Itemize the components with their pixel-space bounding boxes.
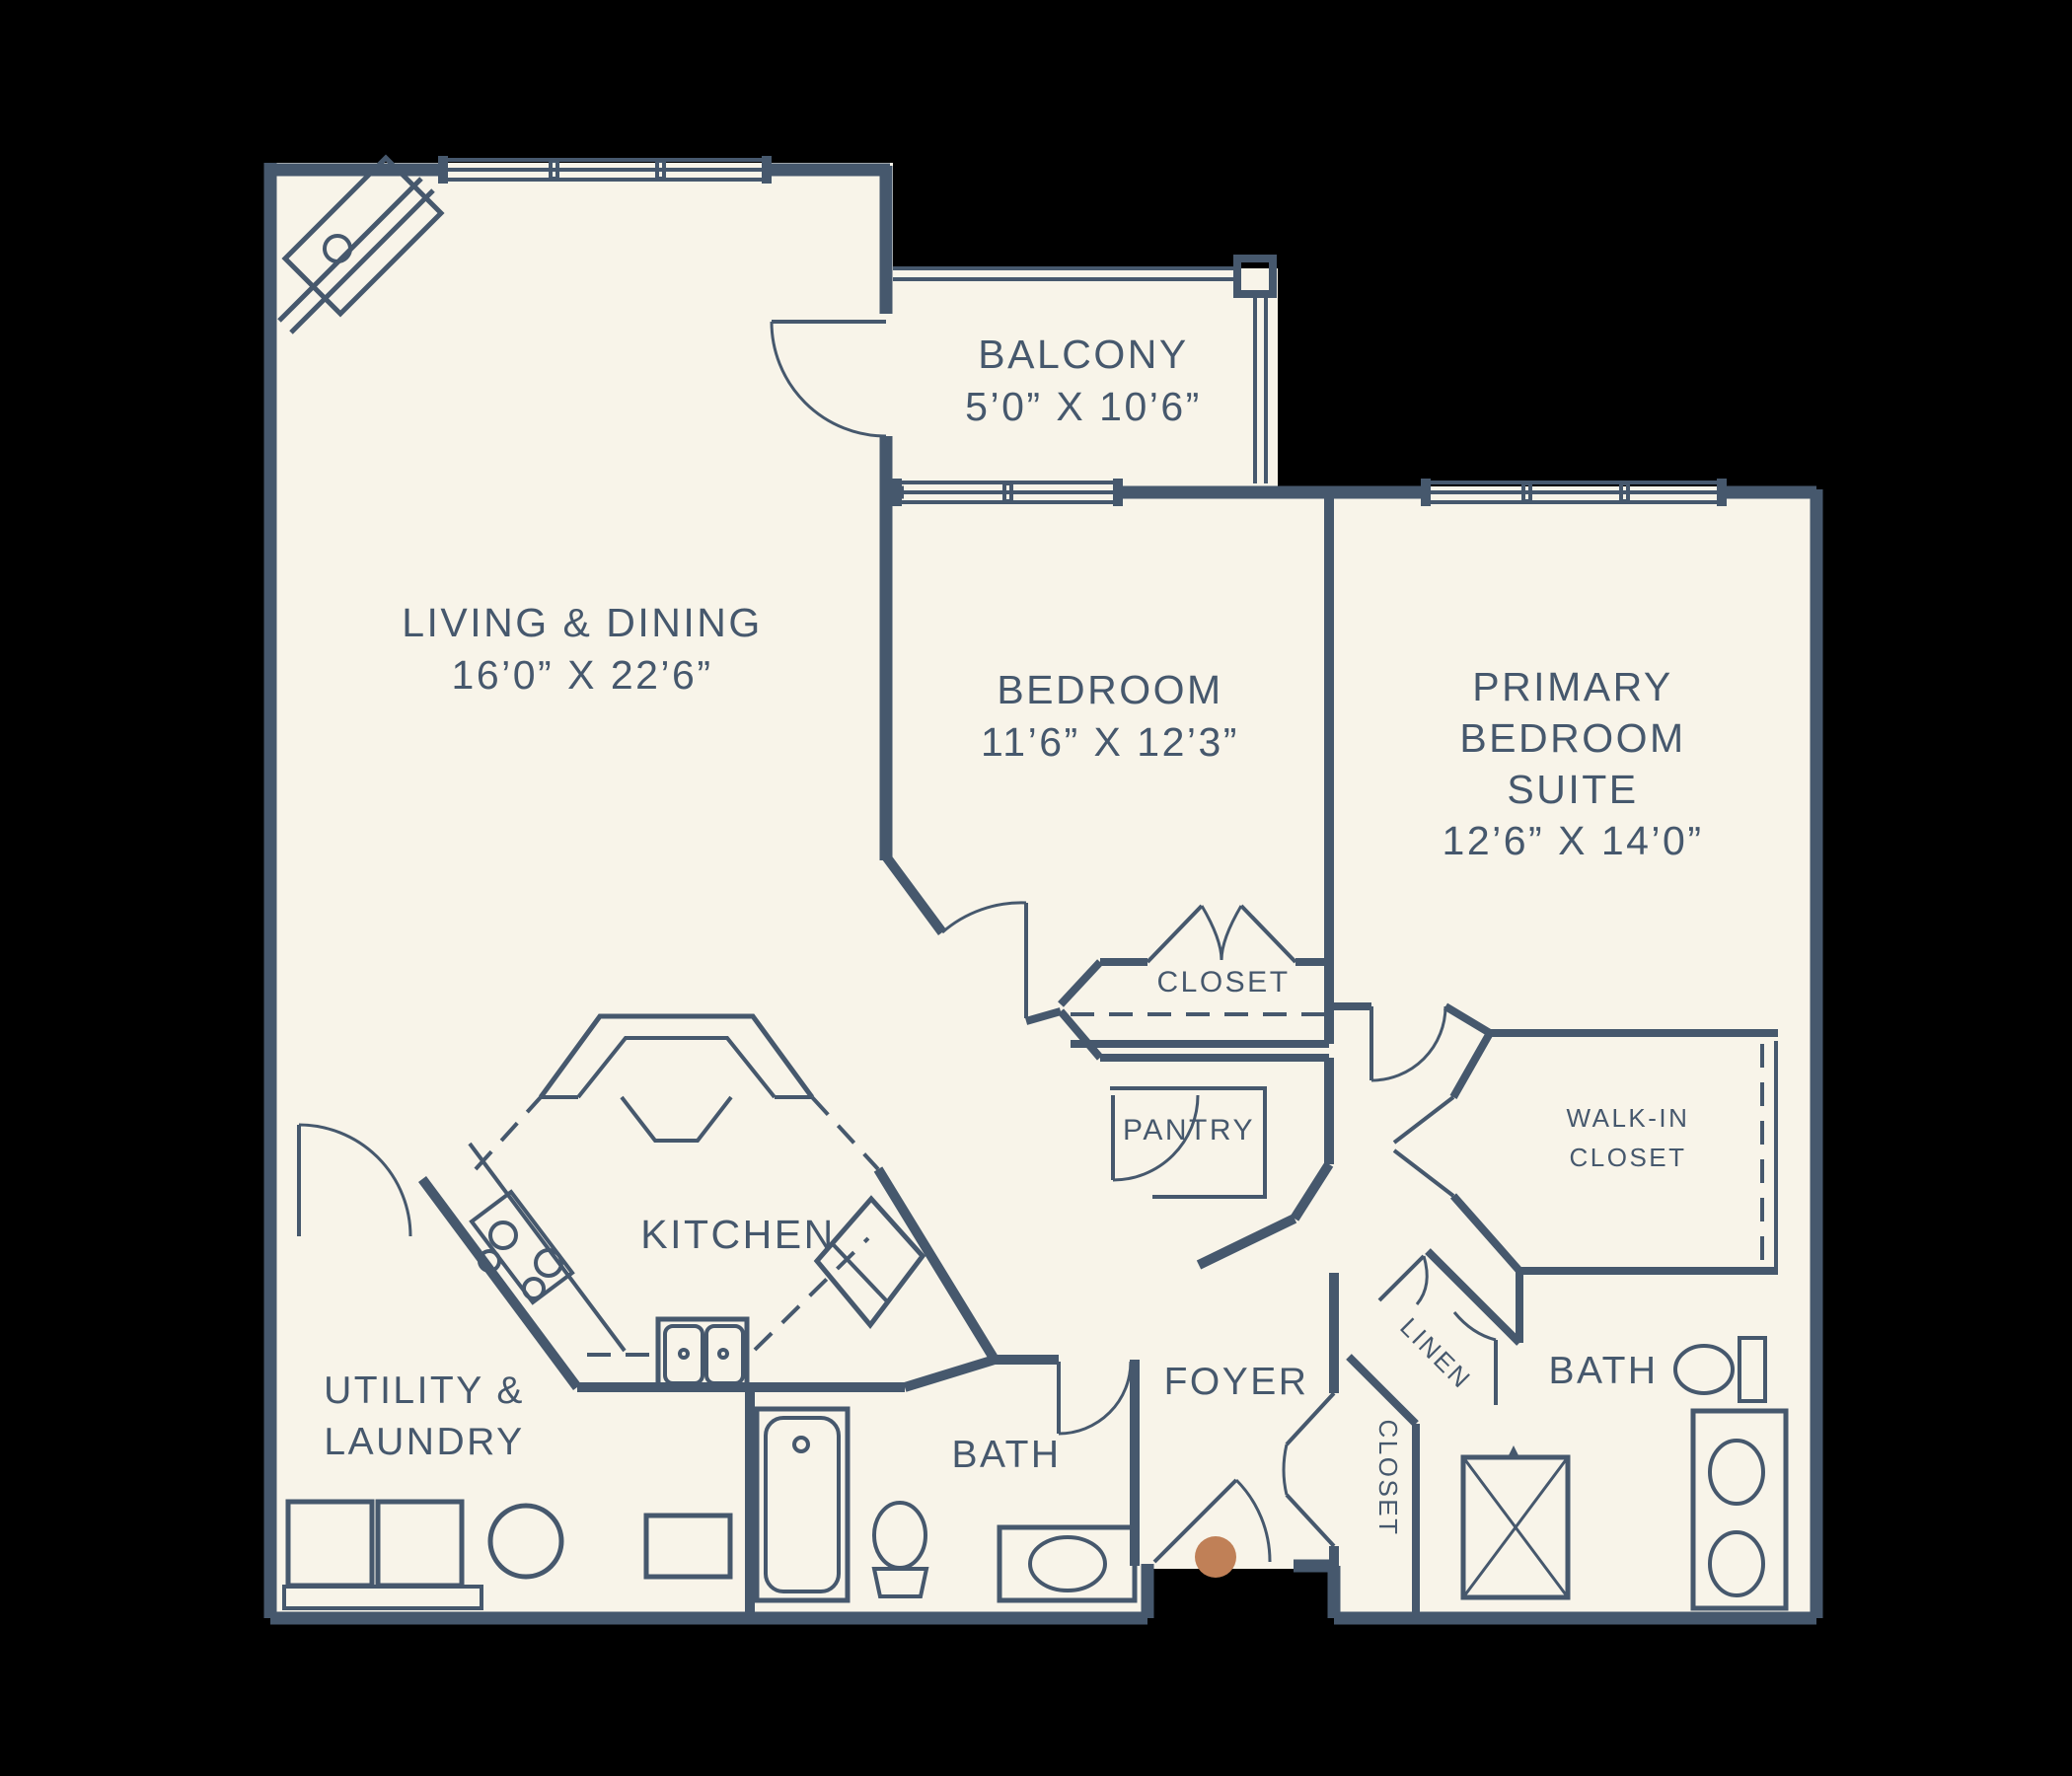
entry-marker-dot: [1195, 1536, 1236, 1578]
primary-label-line2: BEDROOM: [1459, 715, 1685, 761]
bath-left-label: BATH: [951, 1434, 1061, 1476]
primary-label-line1: PRIMARY: [1472, 664, 1673, 709]
window-bedroom: [892, 479, 1123, 506]
balcony-dims: 5’0” X 10’6”: [965, 384, 1202, 429]
window-primary: [1421, 479, 1727, 506]
foyer-closet-label: CLOSET: [1373, 1419, 1403, 1536]
walk-in-closet-label-line1: WALK-IN: [1567, 1103, 1690, 1133]
living-dining-label: LIVING & DINING: [402, 600, 763, 645]
primary-dims: 12’6” X 14’0”: [1443, 818, 1704, 863]
pantry-label: PANTRY: [1123, 1114, 1255, 1147]
bath-right-label: BATH: [1548, 1350, 1658, 1392]
balcony-label: BALCONY: [978, 332, 1188, 377]
utility-label-line2: LAUNDRY: [324, 1421, 524, 1463]
living-dining-dims: 16’0” X 22’6”: [452, 652, 713, 698]
kitchen-label: KITCHEN: [640, 1212, 835, 1257]
utility-label-line1: UTILITY &: [324, 1369, 525, 1412]
primary-label-line3: SUITE: [1507, 767, 1638, 812]
window-top: [438, 156, 772, 184]
walk-in-closet-label-line2: CLOSET: [1569, 1143, 1686, 1172]
foyer-label: FOYER: [1164, 1361, 1309, 1403]
floor-plan-svg: LIVING & DINING 16’0” X 22’6” BALCONY 5’…: [0, 0, 2072, 1776]
bedroom-dims: 11’6” X 12’3”: [981, 719, 1239, 765]
bedroom-label: BEDROOM: [997, 667, 1222, 712]
bedroom-closet-label: CLOSET: [1156, 966, 1290, 999]
floor-plan-page: LIVING & DINING 16’0” X 22’6” BALCONY 5’…: [0, 0, 2072, 1776]
